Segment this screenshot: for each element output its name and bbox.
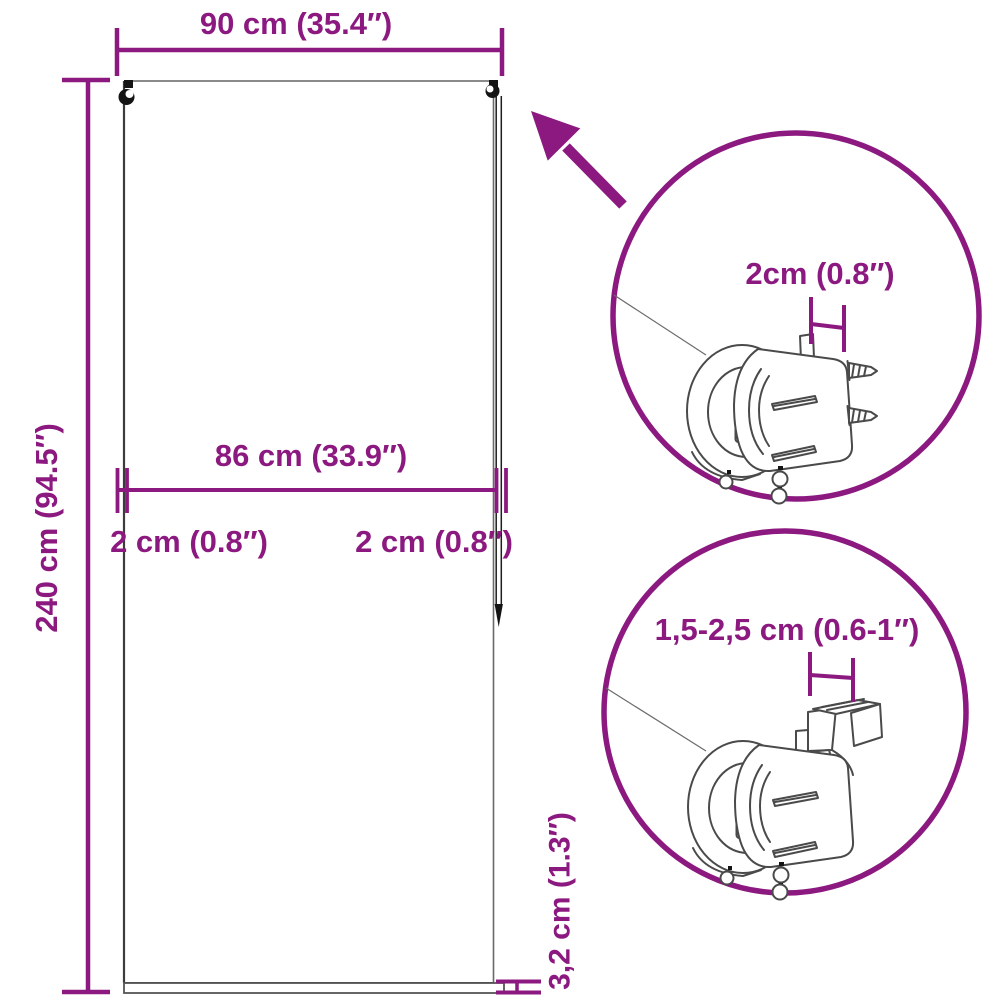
zoom-arrow-icon bbox=[531, 111, 623, 205]
screw-icon bbox=[848, 406, 878, 425]
fabric-width-label: 86 cm (33.9″) bbox=[215, 438, 407, 473]
detail-top-gap-dimension bbox=[811, 297, 844, 352]
detail-bottom-gap-dimension bbox=[810, 652, 853, 702]
clamp-bracket-icon bbox=[606, 688, 882, 900]
total-width-label: 90 cm (35.4″) bbox=[200, 6, 392, 41]
detail-bottom-gap-label: 1,5-2,5 cm (0.6-1″) bbox=[655, 612, 920, 647]
bottom-bar-label: 3,2 cm (1.3″) bbox=[544, 812, 577, 990]
bottom-rail bbox=[124, 983, 504, 993]
ceiling-reference-line bbox=[614, 295, 706, 355]
left-offset-label: 2 cm (0.8″) bbox=[110, 524, 268, 559]
left-corner-bracket-icon bbox=[119, 80, 135, 105]
frame-reference-line bbox=[606, 688, 706, 751]
cord-tassel bbox=[495, 604, 503, 627]
total-height-dimension bbox=[62, 80, 110, 992]
total-height-label: 240 cm (94.5″) bbox=[29, 423, 64, 633]
right-offset-label: 2 cm (0.8″) bbox=[355, 524, 513, 559]
screw-icon bbox=[848, 361, 878, 380]
detail-top-gap-label: 2cm (0.8″) bbox=[745, 256, 894, 291]
roller-blind-dimension-diagram: 90 cm (35.4″) 240 cm (94.5″) 86 cm (33.9… bbox=[0, 0, 1000, 1000]
